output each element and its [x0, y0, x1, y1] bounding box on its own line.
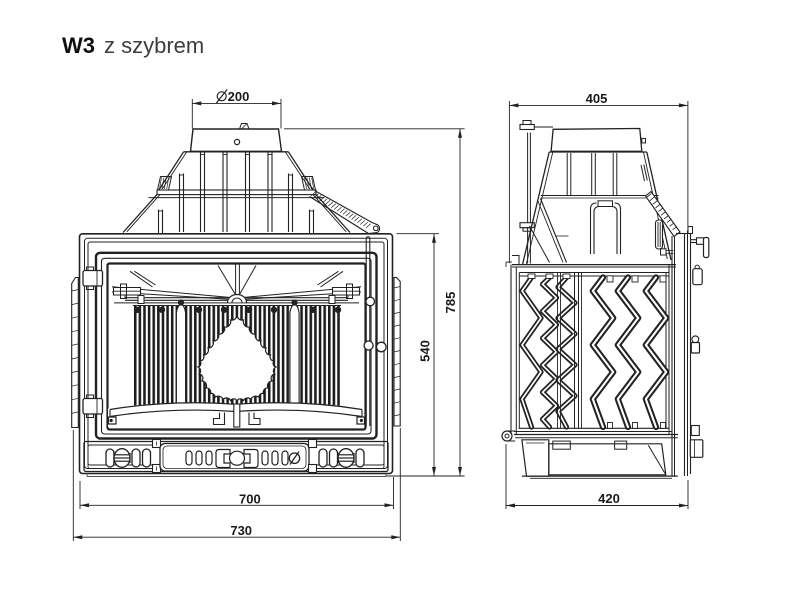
- svg-text:700: 700: [239, 491, 261, 506]
- svg-text:420: 420: [598, 491, 620, 506]
- svg-text:200: 200: [228, 89, 250, 104]
- svg-text:405: 405: [586, 91, 608, 106]
- svg-text:730: 730: [230, 523, 252, 538]
- svg-text:z szybrem: z szybrem: [104, 33, 204, 58]
- svg-text:W3: W3: [62, 33, 95, 58]
- svg-text:540: 540: [418, 340, 433, 362]
- svg-text:785: 785: [443, 292, 458, 314]
